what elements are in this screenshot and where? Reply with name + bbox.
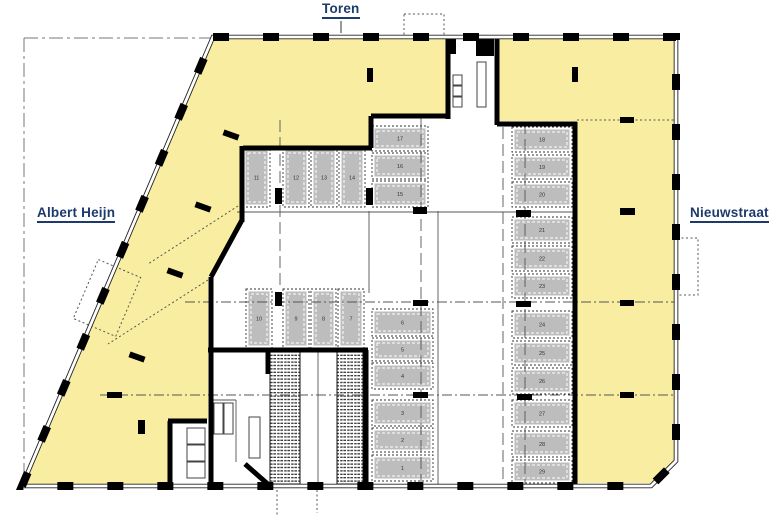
parking-stall-3: 3: [372, 400, 433, 426]
stall-number: 25: [539, 351, 545, 357]
parking-stall-17: 17: [372, 126, 428, 151]
parking-stall-24: 24: [512, 311, 572, 338]
dotted-annex-top: [404, 14, 444, 36]
floorplan-drawing: 1112131417161510987654321181920212223242…: [0, 0, 780, 520]
parking-stall-1: 1: [372, 455, 433, 481]
lift-door: [214, 403, 223, 434]
stall-number: 4: [401, 374, 404, 380]
stall-number: 18: [539, 138, 545, 144]
parking-stall-9: 9: [283, 289, 309, 348]
parking-stall-4: 4: [372, 363, 433, 389]
stall-number: 7: [349, 317, 352, 323]
parking-stall-7: 7: [338, 289, 364, 348]
door-leaf: [249, 417, 260, 458]
parking-stall-6: 6: [372, 309, 433, 336]
parking-stall-15: 15: [372, 181, 428, 207]
shaft-cupboard: [453, 86, 462, 96]
stall-number: 6: [401, 321, 404, 327]
parking-stall-27: 27: [512, 400, 572, 427]
parking-stall-28: 28: [512, 431, 572, 457]
stall-number: 24: [539, 323, 545, 329]
stall-number: 3: [401, 411, 404, 417]
stall-number: 8: [322, 317, 325, 323]
dotted-annex-right: [677, 238, 698, 295]
storage-cupboard: [187, 462, 205, 478]
parking-stall-8: 8: [311, 289, 336, 348]
stall-number: 12: [293, 176, 299, 182]
parking-stall-25: 25: [512, 341, 572, 365]
parking-stall-12: 12: [283, 148, 309, 207]
parking-stall-23: 23: [512, 274, 572, 298]
stall-number: 9: [294, 317, 297, 323]
parking-stall-18: 18: [512, 127, 572, 152]
stall-number: 1: [401, 466, 404, 472]
floorplan: 1112131417161510987654321181920212223242…: [0, 0, 780, 520]
stall-number: 23: [539, 284, 545, 290]
stall-number: 13: [321, 176, 327, 182]
parking-stall-11: 11: [243, 148, 270, 207]
stairs-ramp-2: [337, 350, 363, 484]
stall-number: 5: [401, 348, 404, 354]
parking-stall-16: 16: [372, 153, 428, 179]
stall-number: 26: [539, 379, 545, 385]
stall-number: 20: [539, 193, 545, 199]
parking-stall-21: 21: [512, 217, 572, 243]
storage-cupboard: [187, 445, 205, 461]
parking-stall-14: 14: [339, 148, 365, 207]
parking-stall-10: 10: [246, 289, 272, 348]
stall-number: 27: [539, 412, 545, 418]
label-nieuwstraat: Nieuwstraat: [690, 205, 769, 223]
shaft-cupboard: [453, 75, 462, 85]
stall-number: 14: [349, 176, 355, 182]
stall-number: 11: [254, 176, 260, 182]
parking-stall-20: 20: [512, 182, 572, 207]
stall-number: 17: [397, 137, 403, 143]
parking-stall-13: 13: [311, 148, 337, 207]
stall-number: 15: [397, 192, 403, 198]
parking-stall-19: 19: [512, 155, 572, 179]
parking-stall-26: 26: [512, 368, 572, 394]
label-albert-heijn: Albert Heijn: [37, 205, 115, 223]
parking-stall-22: 22: [512, 246, 572, 271]
stall-number: 16: [397, 164, 403, 170]
lift-door: [224, 403, 233, 434]
stall-number: 28: [539, 442, 545, 448]
shaft-cupboard: [453, 97, 462, 107]
stall-number: 19: [539, 165, 545, 171]
parking-stall-29: 29: [512, 460, 572, 483]
stall-number: 2: [401, 438, 404, 444]
stall-number: 29: [539, 470, 545, 476]
stall-number: 21: [539, 228, 545, 234]
stall-number: 10: [256, 317, 262, 323]
storage-cupboard: [187, 428, 205, 444]
elevator-shaft: [477, 62, 486, 107]
label-toren: Toren: [322, 1, 360, 19]
parking-stall-5: 5: [372, 338, 433, 361]
zone-top-right: [497, 38, 675, 121]
parking-stall-2: 2: [372, 428, 433, 452]
stall-number: 22: [539, 257, 545, 263]
stairs-ramp-1: [270, 352, 300, 484]
